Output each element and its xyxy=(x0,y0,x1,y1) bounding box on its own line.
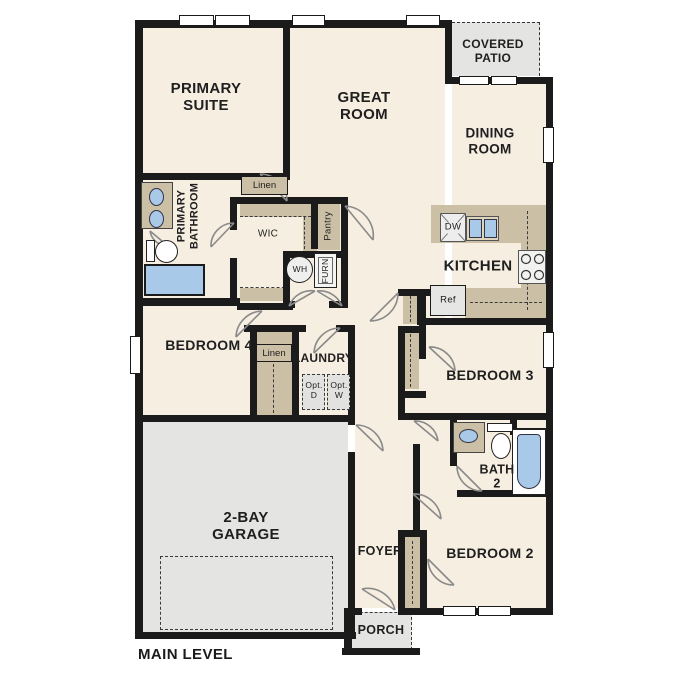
room-label-great-room: GREAT ROOM xyxy=(338,89,391,124)
fixture-label-wh: WH xyxy=(293,265,308,275)
closet-label-linen-hall: Linen xyxy=(262,348,285,359)
room-label-dining-room: DINING ROOM xyxy=(465,125,514,156)
room-label-bedroom-2: BEDROOM 2 xyxy=(446,545,534,561)
room-label-bedroom-3: BEDROOM 3 xyxy=(446,367,534,383)
floor-plan: PRIMARY SUITE GREAT ROOM COVERED PATIO D… xyxy=(0,0,687,687)
room-label-bath-2: BATH 2 xyxy=(480,463,515,492)
bathtub-2-basin xyxy=(517,434,541,489)
sink xyxy=(149,210,164,228)
toilet-bowl xyxy=(491,433,511,459)
closet-linen-hall: Linen xyxy=(256,344,292,362)
room-label-primary-suite: PRIMARY SUITE xyxy=(171,80,242,115)
room-label-primary-bathroom: PRIMARY BATHROOM xyxy=(175,183,200,249)
fixture-label-dw: DW xyxy=(444,223,462,234)
toilet-tank xyxy=(487,423,513,432)
fixture-label-ref: Ref xyxy=(440,296,456,307)
sink xyxy=(459,429,478,443)
room-label-foyer: FOYER xyxy=(358,544,403,558)
room-label-kitchen: KITCHEN xyxy=(444,257,513,274)
room-label-laundry: LAUNDRY xyxy=(293,352,353,366)
closet-label-pantry: Pantry xyxy=(324,211,335,240)
toilet-tank xyxy=(146,240,155,262)
fixture-label-furn: FURN xyxy=(321,259,331,284)
sink xyxy=(149,188,164,206)
room-label-porch: PORCH xyxy=(358,623,405,637)
closet-linen-bathroom: Linen xyxy=(241,176,288,195)
sink-basin xyxy=(469,219,482,238)
stove xyxy=(518,250,546,284)
closet-label-linen-top: Linen xyxy=(253,180,276,191)
fixture-label-opt-d: Opt. D xyxy=(305,381,322,401)
fixture-label-opt-w: Opt. W xyxy=(330,381,347,401)
closet-label-wic: WIC xyxy=(258,228,278,240)
room-label-covered-patio: COVERED PATIO xyxy=(462,38,523,66)
bathtub-primary xyxy=(144,264,205,296)
plan-title: MAIN LEVEL xyxy=(138,646,233,663)
room-label-garage: 2-BAY GARAGE xyxy=(212,509,280,544)
sink-basin xyxy=(484,219,497,238)
room-label-bedroom-4: BEDROOM 4 xyxy=(165,337,253,353)
